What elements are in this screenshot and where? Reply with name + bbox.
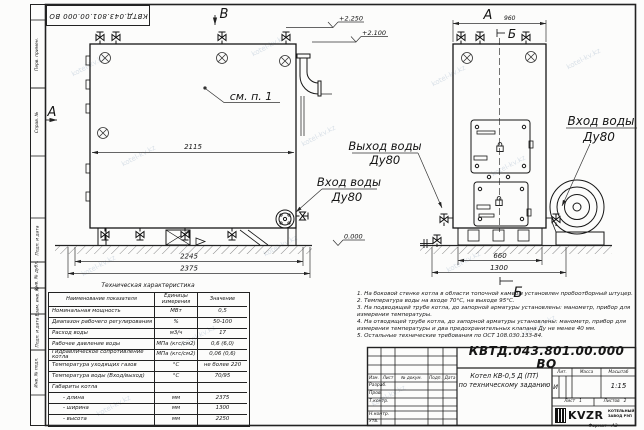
spec-row-name: Диапазон рабочего регулирования: [49, 318, 155, 329]
side-valves: [420, 214, 560, 248]
spec-row-units: мм: [155, 415, 198, 426]
corner-stamp-number: КВТД.043.801.00.000 ВО: [49, 12, 148, 20]
spec-row-units: %: [155, 318, 198, 329]
callout-see-note: см. п. 1: [230, 90, 273, 103]
tb-sheets: Листов 2: [594, 398, 636, 406]
spec-row-value: 0,6 (6,0): [198, 339, 247, 350]
view-label-a-left: А: [47, 105, 57, 120]
dim-2375: 2375: [180, 265, 198, 273]
spec-row-units: °С: [155, 372, 198, 383]
note-2: 2. Температура воды на входе 70°С, на вы…: [357, 298, 640, 305]
spec-row-units: [155, 383, 198, 394]
border-label-podp-data-2: Подп. и дата: [30, 314, 45, 350]
spec-row-units: м3/ч: [155, 329, 198, 340]
drawing-sheet: kotel-kv.kz kotel-kv.kz kotel-kv.kz kote…: [0, 0, 644, 430]
spec-row-value: 2375: [198, 393, 247, 404]
border-label-sprav-no: Справ. №: [30, 88, 45, 156]
tb-lit-header: Лит.: [552, 368, 572, 376]
spec-row-value: 70/95: [198, 372, 247, 383]
tb-lit-value: И: [552, 376, 559, 398]
spec-row-name: - ширина: [49, 404, 155, 415]
kvzr-logo: KVZR: [555, 407, 607, 424]
dim-2245: 2245: [180, 253, 198, 261]
view-label-a-side: А: [483, 8, 493, 23]
spec-row-value: 50-100: [198, 318, 247, 329]
format-value: А3: [612, 425, 618, 430]
label-water-outlet-dn: Ду80: [369, 153, 400, 167]
format-note: Формат А3: [570, 425, 636, 430]
spec-row-name: Расход воды: [49, 329, 155, 340]
dim-1300: 1300: [490, 264, 508, 272]
tb-col-list: Лист: [381, 374, 395, 382]
tb-col-podp: Подп.: [428, 374, 443, 382]
spec-row-units: мм: [155, 404, 198, 415]
tb-row-utv: Утв.: [369, 419, 397, 426]
ground-line: [55, 246, 612, 255]
tb-scale-value: 1:15: [601, 376, 636, 398]
spec-row-name: - высота: [49, 415, 155, 426]
tb-row-razrab: Разраб.: [369, 382, 397, 390]
tb-row-prov: Пров.: [369, 390, 397, 398]
company-line2: ЗАВОД РЭП: [608, 414, 636, 419]
label-water-inlet-front-dn: Ду80: [331, 190, 362, 204]
spec-row-value: 2250: [198, 415, 247, 426]
border-label-podp-data: Подп. и дата: [30, 218, 45, 262]
tb-mass-header: Масса: [572, 368, 601, 376]
tb-col-doc: № докум.: [395, 374, 428, 382]
tb-sheets-label: Листов: [604, 400, 620, 405]
spec-row-name: - длина: [49, 393, 155, 404]
spec-row-value: 17: [198, 329, 247, 340]
tb-col-data: Дата: [443, 374, 457, 382]
company-line1: КОТЕЛЬНЫЙ: [608, 409, 636, 414]
tb-title-line2: по техническому заданию: [458, 381, 551, 390]
spec-row-units: МПа (кгс/см2): [155, 339, 198, 350]
spec-row-name: Габариты котла: [49, 383, 155, 394]
elev-0000: 0.000: [344, 233, 363, 241]
label-water-inlet-side-dn: Ду80: [582, 130, 615, 144]
border-label-perv-primen: Перв. примен.: [30, 20, 45, 88]
note-1: 1. На боковой стенке котла в области топ…: [357, 291, 640, 298]
spec-col-name: Наименование показателя: [49, 293, 155, 307]
side-base-frame: [458, 228, 542, 245]
tb-col-izm: Изм.: [367, 374, 381, 382]
kvzr-logo-text: KVZR: [568, 409, 603, 422]
boiler-front-view: [86, 32, 332, 245]
front-top-valves: [96, 32, 290, 44]
note-3: 3. На подводящей трубе котла, до запорно…: [357, 305, 640, 318]
draft-fan: [550, 180, 604, 245]
label-water-inlet-front: Вход воды: [317, 175, 381, 189]
tb-drawing-title: Котел КВ-0,5 Д (ПТ) по техническому зада…: [458, 372, 551, 424]
spec-row-units: мм: [155, 393, 198, 404]
boiler-side-view: [420, 32, 604, 248]
tb-sheet-label: Лист: [564, 400, 575, 405]
tb-row-nkontr: Н.контр.: [369, 411, 397, 419]
spec-row-name: Гидравлическое сопротивление котла: [49, 350, 155, 361]
spec-row-units: МПа (кгс/см2): [155, 350, 198, 361]
format-label: Формат: [588, 425, 606, 430]
dimensions: [68, 20, 566, 278]
note-4: 4. На отводящей трубе котла, до запорной…: [357, 319, 640, 332]
technical-notes: 1. На боковой стенке котла в области топ…: [357, 291, 640, 340]
spec-table-title: Техническая характеристика: [48, 282, 248, 290]
spec-row-name: Рабочее давление воды: [49, 339, 155, 350]
spec-row-name: Температура воды (Вход/выход): [49, 372, 155, 383]
border-label-vzam-inv: Взам. инв. №: [30, 288, 45, 314]
tb-title-line1: Котел КВ-0,5 Д (ПТ): [458, 372, 551, 381]
spec-col-value: Значение: [198, 293, 247, 307]
corner-stamp: КВТД.043.801.00.000 ВО: [46, 5, 150, 26]
spec-row-value: 0,06 (0,6): [198, 350, 247, 361]
border-label-inv-podl: Инв. № подл.: [30, 350, 45, 395]
spec-table: Наименование показателя Единицы измерени…: [48, 292, 250, 427]
spec-row-value: 1300: [198, 404, 247, 415]
dim-960: 960: [504, 15, 516, 22]
tb-doc-number: КВТД.043.801.00.000 ВО: [458, 348, 635, 367]
tb-sheets-value: 2: [624, 400, 627, 405]
spec-row-name: Температура уходящих газов: [49, 361, 155, 372]
tb-sheet-value: 1: [579, 400, 582, 405]
elev-2100: +2.100: [362, 29, 386, 37]
view-label-b-top: В: [220, 7, 229, 22]
dim-2115: 2115: [184, 143, 202, 151]
company-name: КОТЕЛЬНЫЙ ЗАВОД РЭП: [608, 409, 636, 418]
label-water-outlet: Выход воды: [348, 139, 421, 153]
dim-660: 660: [493, 252, 507, 260]
spec-row-name: Номинальная мощность: [49, 307, 155, 318]
elev-2250: +2.250: [339, 15, 363, 23]
label-water-inlet-side: Вход воды: [568, 114, 635, 128]
note-5: 5. Остальные технические требования по О…: [357, 333, 640, 340]
outlet-elbow-pipe: [297, 54, 332, 136]
kvzr-coil-icon: [555, 408, 566, 423]
border-label-inv-dubl: Инв. № дубл.: [30, 262, 45, 288]
side-top-valves: [457, 32, 530, 44]
spec-row-value: не более 220: [198, 361, 247, 372]
spec-row-units: МВт: [155, 307, 198, 318]
spec-row-units: °С: [155, 361, 198, 372]
inlet-flange: [276, 210, 294, 228]
section-label-b-top: Б: [508, 27, 516, 41]
tb-sheet: Лист 1: [552, 398, 594, 406]
view-marks: [45, 15, 513, 285]
spec-row-value: [198, 383, 247, 394]
spec-col-units: Единицы измерения: [155, 293, 198, 307]
upper-door: [471, 120, 533, 173]
spec-row-value: 0,5: [198, 307, 247, 318]
tb-scale-header: Масштаб: [601, 368, 636, 376]
tb-row-tkontr: Т.контр.: [369, 398, 397, 406]
front-base-frame: [98, 228, 296, 245]
